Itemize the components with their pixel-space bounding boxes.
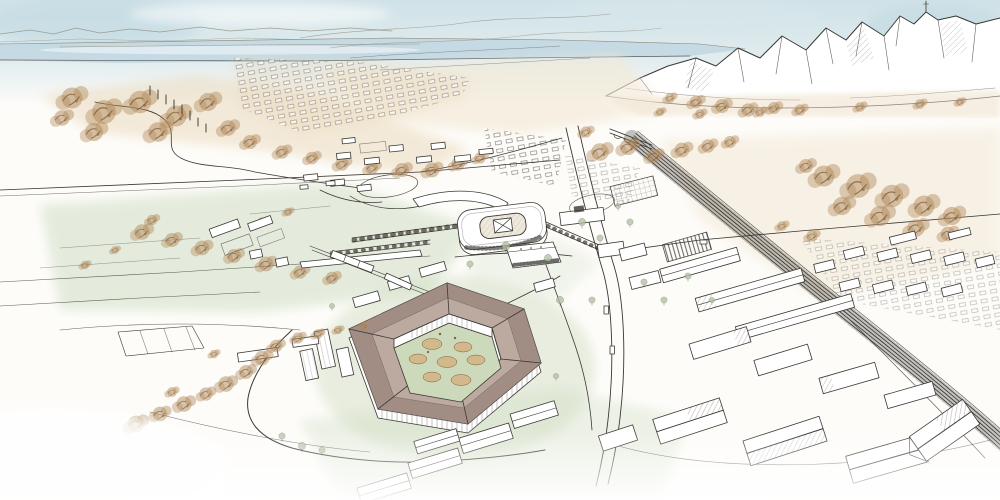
aerial-sketch xyxy=(0,0,1000,500)
sketch-canvas xyxy=(0,0,1000,500)
